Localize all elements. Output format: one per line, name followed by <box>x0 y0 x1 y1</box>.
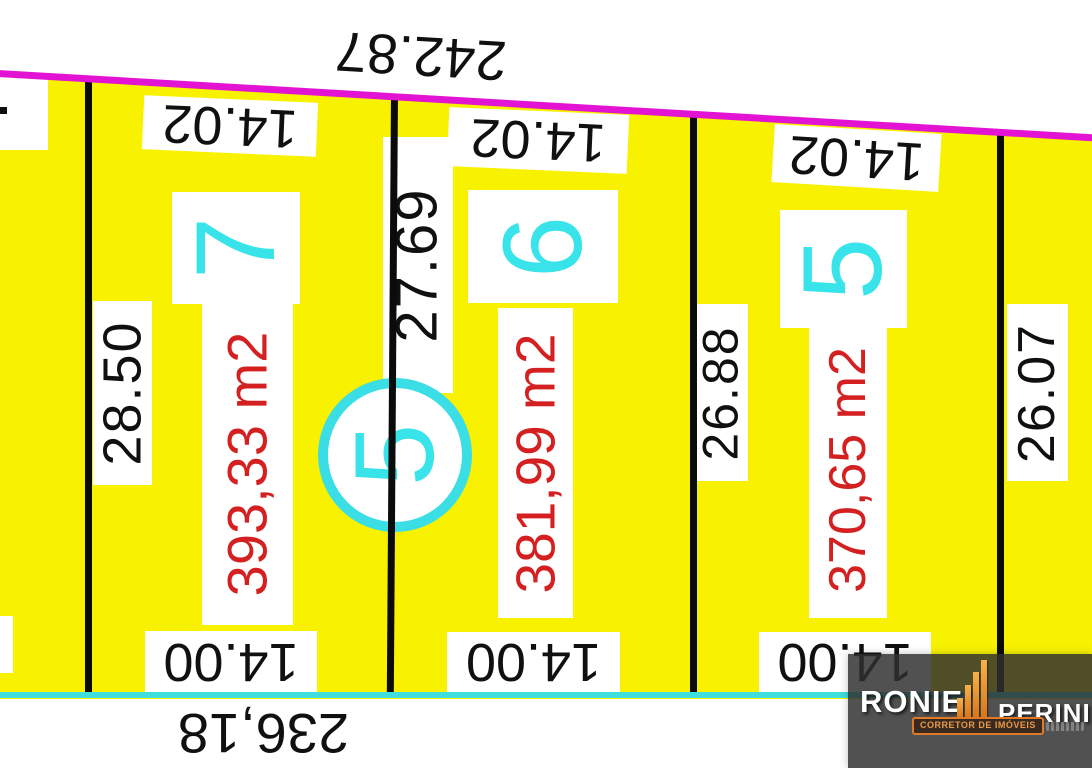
lot-7-rear-length: 14.00 <box>163 635 298 689</box>
lot-5-front-length-label: 14.02 <box>771 124 941 192</box>
adjacent-side-length-label: 26.07 <box>1007 304 1068 481</box>
brand-buildings-icon <box>957 658 997 718</box>
lot-7-rear-length-label: 14.00 <box>145 631 317 693</box>
lot-7-front-length-label: 14.02 <box>142 95 318 157</box>
brand-name-first: RONIE <box>860 684 963 720</box>
lot-6-rear-length-label: 14.00 <box>447 632 620 693</box>
front-boundary-length-label: 242.87 <box>323 19 518 92</box>
lot-7-front-length: 14.02 <box>161 96 298 156</box>
lot-7-area: 393,33 m2 <box>220 332 276 597</box>
lot-7-side-length-label: 28.50 <box>93 301 152 485</box>
label-fragment-top-left <box>0 77 48 150</box>
lot-7-area-label: 393,33 m2 <box>202 303 293 625</box>
rear-boundary-length-label: 236,18 <box>167 704 360 762</box>
lot-6-number-label: 6 <box>468 190 618 303</box>
lot-divider-line-4 <box>997 131 1004 697</box>
watermark-logo: RONIE PERINI CORRETOR DE IMÓVEIS <box>848 654 1092 768</box>
lot-5-side-length-label: 26.88 <box>694 304 748 481</box>
brand-fineprint <box>1046 722 1084 731</box>
adjacent-side-length: 26.07 <box>1012 322 1064 462</box>
rear-boundary-length: 236,18 <box>178 705 349 761</box>
lot-5-area-label: 370,65 m2 <box>809 322 887 618</box>
label-fragment-bottom-left <box>0 616 13 673</box>
lot-7-number: 7 <box>180 217 292 279</box>
plat-drawing: 242.87 14.02 7 393,33 m2 28.50 14.00 14.… <box>0 0 1092 768</box>
lot-5-side-length: 26.88 <box>696 325 746 460</box>
lot-5-number: 5 <box>787 238 899 300</box>
lot-6-number: 6 <box>487 215 599 277</box>
lot-5-number-label: 5 <box>780 210 907 328</box>
lot-divider-line-1 <box>85 76 92 697</box>
lot-6-rear-length: 14.00 <box>466 636 601 690</box>
lot-7-side-length: 28.50 <box>96 320 150 465</box>
lot-6-side-length: 27.69 <box>389 187 447 342</box>
text-fragment-top-left <box>0 107 7 114</box>
lot-6-front-length: 14.02 <box>469 111 606 171</box>
lot-5-area: 370,65 m2 <box>822 347 874 593</box>
lot-6-front-length-label: 14.02 <box>447 107 629 174</box>
lot-5-front-length: 14.02 <box>787 127 925 189</box>
front-boundary-length: 242.87 <box>334 23 508 89</box>
lot-7-number-label: 7 <box>172 192 300 304</box>
lot-6-area-label: 381,99 m2 <box>498 308 573 618</box>
lot-6-area: 381,99 m2 <box>508 333 563 593</box>
brand-tagline: CORRETOR DE IMÓVEIS <box>912 717 1044 735</box>
lot-divider-line-3 <box>690 114 697 697</box>
